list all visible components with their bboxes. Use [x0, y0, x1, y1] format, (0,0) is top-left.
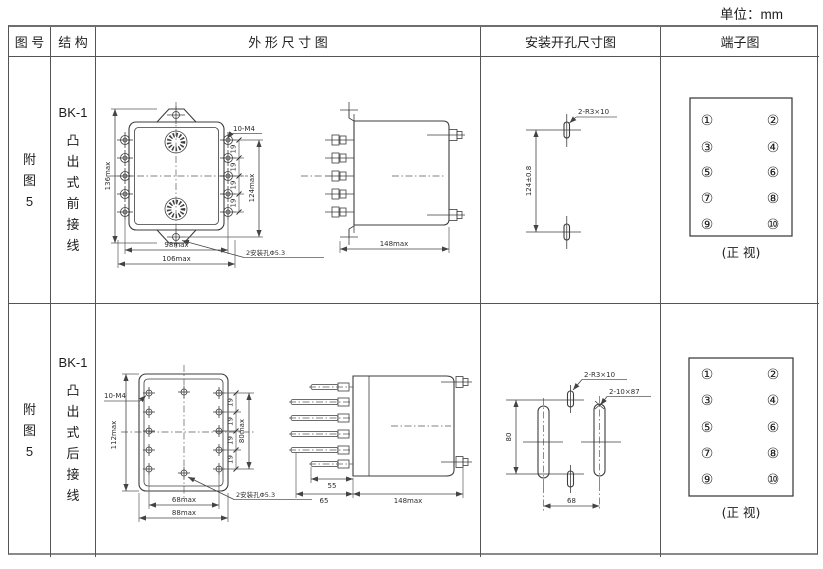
dim-pitch: 19 [227, 455, 235, 464]
dim-pitch: 19 [227, 417, 235, 426]
structure-char: 式 [66, 422, 79, 443]
dim-slot-label: 2-R3×10 [584, 371, 615, 379]
unit-label: 单位：mm [720, 3, 783, 23]
structure-char: 凸 [66, 380, 79, 401]
page: 单位：mm 图 号 结 构 外 形 尺 寸 图 安装开孔尺寸图 端子图 附 图 … [0, 0, 823, 569]
header-mounting-holes: 安装开孔尺寸图 [481, 27, 661, 57]
structure-char: 线 [66, 485, 79, 506]
dim-mount-height: 80max [238, 418, 246, 442]
side-view: 55 65 148max [289, 376, 472, 505]
terminal-9: ⑨ [700, 217, 713, 233]
structure-char: 出 [66, 151, 79, 172]
structure-char: 后 [66, 443, 79, 464]
header-structure: 结 构 [51, 27, 96, 57]
terminal-5: ⑤ [700, 165, 713, 181]
dim-base-depth: 65 [320, 497, 329, 505]
dim-slot-label: 2-R3×10 [578, 108, 609, 116]
dim-hole-spacing-v: 80 [505, 432, 513, 441]
dim-hole-spacing-h: 68 [567, 497, 576, 505]
mounting-cell-row1: 124±0.8 2-R3×10 [481, 57, 661, 304]
dim-width-outer: 88max [172, 509, 196, 517]
side-terminals [325, 135, 354, 217]
terminal-6: ⑥ [766, 420, 779, 436]
dim-mount-holes-label: 2安装孔Φ5.3 [246, 248, 285, 257]
dim-pitch: 19 [230, 145, 238, 154]
terminal-cell-row2: ① ② ③ ④ ⑤ ⑥ ⑦ ⑧ ⑨ ⑩ (正 视) [661, 304, 819, 557]
dim-pin-length: 55 [328, 482, 337, 490]
mounting-dimensions: 124±0.8 2-R3×10 [525, 108, 617, 232]
terminal-caption: (正 视) [721, 505, 760, 520]
terminal-diagram-rear-wiring: ① ② ③ ④ ⑤ ⑥ ⑦ ⑧ ⑨ ⑩ (正 视) [662, 305, 819, 557]
dim-pitch: 19 [227, 398, 235, 407]
structure-char: 线 [66, 235, 79, 256]
terminal-3: ③ [700, 393, 713, 409]
front-view [110, 102, 248, 249]
structure-char: 式 [66, 172, 79, 193]
outline-cell-row1: 136max 19 19 19 19 [96, 57, 481, 304]
fig-char: 图 [23, 420, 36, 441]
mounting-slots [526, 114, 581, 249]
side-view: 148max [301, 102, 465, 253]
model-label: BK-1 [59, 355, 88, 370]
front-view-dimensions: 136max 19 19 19 19 [104, 109, 324, 268]
fig-char: 附 [23, 399, 36, 420]
terminal-9: ⑨ [700, 472, 713, 488]
terminal-diagram-front-wiring: ① ② ③ ④ ⑤ ⑥ ⑦ ⑧ ⑨ ⑩ (正 视) [662, 57, 819, 303]
mounting-dimensions: 80 68 2-R3×10 2-10×87 [505, 371, 651, 511]
dim-screws-label: 10-M4 [233, 125, 255, 133]
mounting-cell-row2: 80 68 2-R3×10 2-10×87 [481, 304, 661, 557]
terminal-1: ① [700, 113, 713, 129]
dim-big-slot-label: 2-10×87 [609, 388, 640, 396]
dim-depth: 148max [394, 497, 423, 505]
rear-pins [289, 383, 353, 468]
structure-char: 出 [66, 401, 79, 422]
header-outline-dims: 外 形 尺 寸 图 [96, 27, 481, 57]
terminal-2: ② [766, 367, 779, 383]
terminal-2: ② [766, 113, 779, 129]
front-view-dimensions: 112max 10-M4 19 19 [104, 374, 312, 522]
spec-table: 图 号 结 构 外 形 尺 寸 图 安装开孔尺寸图 端子图 附 图 5 BK-1… [8, 25, 818, 555]
terminal-5: ⑤ [700, 420, 713, 436]
terminal-cell-row1: ① ② ③ ④ ⑤ ⑥ ⑦ ⑧ ⑨ ⑩ (正 视) [661, 57, 819, 304]
dim-hole-spacing: 124±0.8 [525, 166, 533, 196]
terminal-6: ⑥ [766, 165, 779, 181]
structure-cell-row2: BK-1 凸 出 式 后 接 线 [51, 304, 96, 557]
side-studs [427, 130, 465, 221]
fig-no-cell-row2: 附 图 5 [9, 304, 51, 557]
mounting-drawing-rear-wiring: 80 68 2-R3×10 2-10×87 [481, 305, 660, 557]
terminal-8: ⑧ [766, 446, 779, 462]
terminal-10: ⑩ [766, 472, 779, 488]
dim-overall-height: 112max [110, 420, 118, 449]
side-studs [441, 376, 472, 467]
structure-char: 接 [66, 214, 79, 235]
model-label: BK-1 [59, 105, 88, 120]
fig-char: 5 [26, 191, 33, 212]
dim-pitch: 19 [230, 163, 238, 172]
structure-char: 前 [66, 193, 79, 214]
outline-cell-row2: 112max 10-M4 19 19 [96, 304, 481, 557]
dim-width-inner: 98max [164, 241, 188, 249]
fig-char: 附 [23, 149, 36, 170]
header-fig-no: 图 号 [9, 27, 51, 57]
outline-drawing-rear-wiring: 112max 10-M4 19 19 [96, 305, 480, 557]
fig-char: 5 [26, 441, 33, 462]
dim-mount-height: 124max [248, 174, 256, 203]
dim-overall-height: 136max [104, 162, 112, 191]
dim-pitch: 19 [230, 181, 238, 190]
terminal-7: ⑦ [700, 191, 713, 207]
dim-pitch: 19 [227, 436, 235, 445]
mounting-drawing-front-wiring: 124±0.8 2-R3×10 [481, 57, 660, 303]
terminal-8: ⑧ [766, 191, 779, 207]
fig-char: 图 [23, 170, 36, 191]
dim-pitch: 19 [230, 199, 238, 208]
dim-width-inner: 68max [172, 496, 196, 504]
dim-screws-label: 10-M4 [104, 392, 126, 400]
dim-width-outer: 106max [162, 255, 191, 263]
terminal-10: ⑩ [766, 217, 779, 233]
structure-cell-row1: BK-1 凸 出 式 前 接 线 [51, 57, 96, 304]
terminal-caption: (正 视) [721, 245, 760, 260]
terminal-7: ⑦ [700, 446, 713, 462]
terminal-1: ① [700, 367, 713, 383]
dim-depth: 148max [380, 240, 409, 248]
structure-char: 接 [66, 464, 79, 485]
terminal-4: ④ [766, 393, 779, 409]
fig-no-cell-row1: 附 图 5 [9, 57, 51, 304]
terminal-4: ④ [766, 140, 779, 156]
outline-drawing-front-wiring: 136max 19 19 19 19 [96, 57, 480, 303]
terminal-3: ③ [700, 140, 713, 156]
header-terminal-diagram: 端子图 [661, 27, 819, 57]
dim-mount-holes-label: 2安装孔Φ5.3 [236, 490, 275, 499]
structure-char: 凸 [66, 130, 79, 151]
